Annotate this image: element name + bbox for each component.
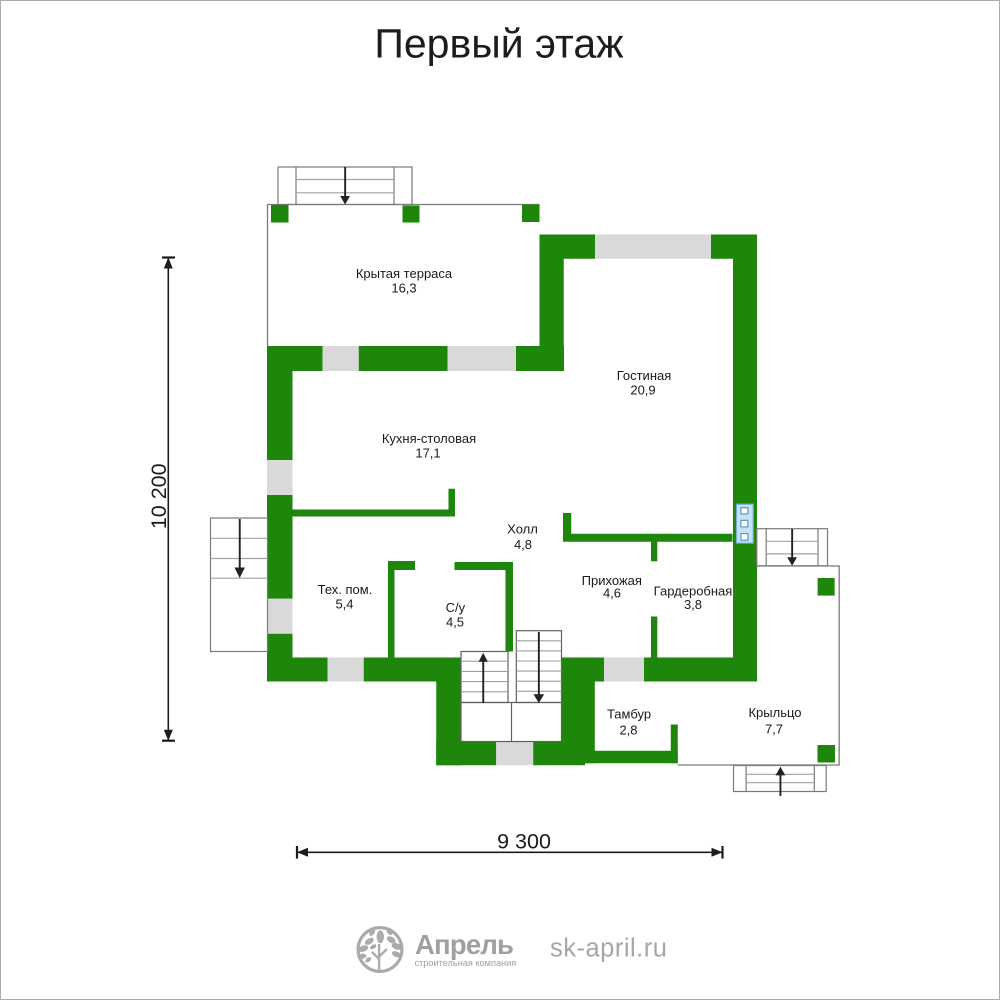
svg-text:2,8: 2,8 [619,722,637,737]
svg-text:Тех. пом.: Тех. пом. [318,582,373,597]
svg-text:Крытая терраса: Крытая терраса [356,266,453,281]
svg-text:Крыльцо: Крыльцо [748,705,801,720]
svg-text:Кухня-столовая: Кухня-столовая [382,431,476,446]
svg-text:Апрель: Апрель [415,929,513,960]
svg-text:sk-april.ru: sk-april.ru [550,935,667,963]
svg-text:Гостиная: Гостиная [617,368,672,383]
svg-text:Тамбур: Тамбур [607,707,651,722]
svg-text:17,1: 17,1 [415,446,440,461]
svg-text:строительная компания: строительная компания [415,958,517,968]
svg-text:16,3: 16,3 [391,281,416,296]
svg-text:20,9: 20,9 [630,382,655,397]
svg-text:9 300: 9 300 [497,829,551,853]
svg-text:5,4: 5,4 [335,596,353,611]
svg-text:10 200: 10 200 [147,463,171,529]
svg-text:С/у: С/у [446,600,466,615]
svg-text:Первый этаж: Первый этаж [374,21,624,67]
svg-text:4,6: 4,6 [603,586,621,601]
svg-text:7,7: 7,7 [765,722,783,737]
svg-text:Холл: Холл [507,521,538,536]
svg-text:3,8: 3,8 [684,597,702,612]
svg-text:4,8: 4,8 [514,537,532,552]
svg-text:4,5: 4,5 [446,614,464,629]
